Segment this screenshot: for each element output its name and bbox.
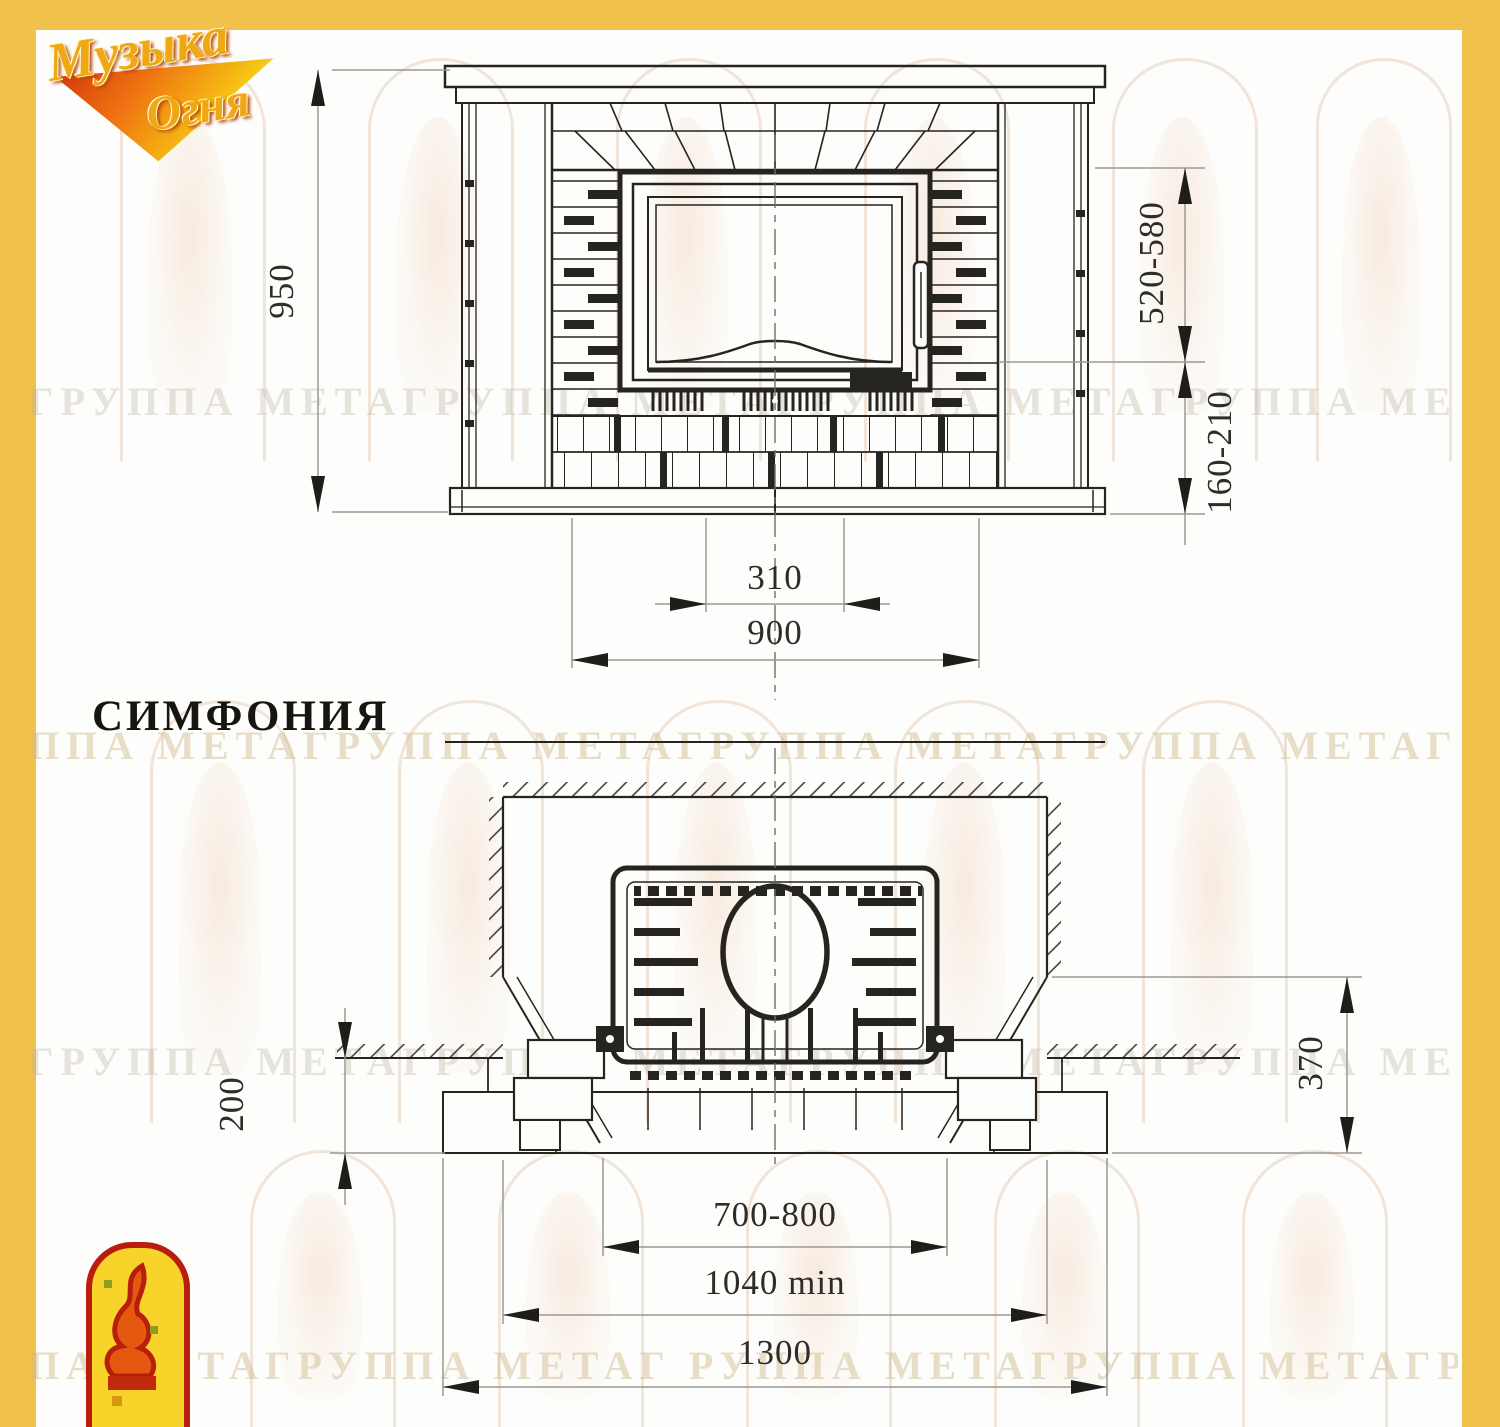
dim-niche-width: 1040 min [704, 1263, 845, 1303]
plan-view-drawing [335, 742, 1240, 1153]
model-title: СИМФОНИЯ [92, 692, 389, 741]
catalog-page: ГРУППА МЕТАГРУППА МЕТАГРУППА МЕТАГРУППА … [0, 0, 1500, 1427]
meta-arch-logo [86, 1242, 190, 1427]
dim-insert-width: 700-800 [713, 1195, 837, 1235]
flame-figure-icon [92, 1248, 172, 1427]
dim-hearth-projection: 200 [212, 1076, 252, 1132]
dim-inner-width: 310 [747, 558, 803, 598]
dim-wall-offset: 370 [1291, 1035, 1331, 1091]
dim-portal-width: 900 [747, 613, 803, 653]
dim-plinth-height: 160-210 [1200, 390, 1240, 514]
dim-overall-height: 950 [262, 263, 302, 319]
dim-opening-height: 520-580 [1132, 201, 1172, 325]
dim-overall-width: 1300 [738, 1333, 812, 1373]
dimension-lines [318, 70, 1362, 1396]
music-of-fire-logo: Музыка Огня [36, 4, 304, 172]
